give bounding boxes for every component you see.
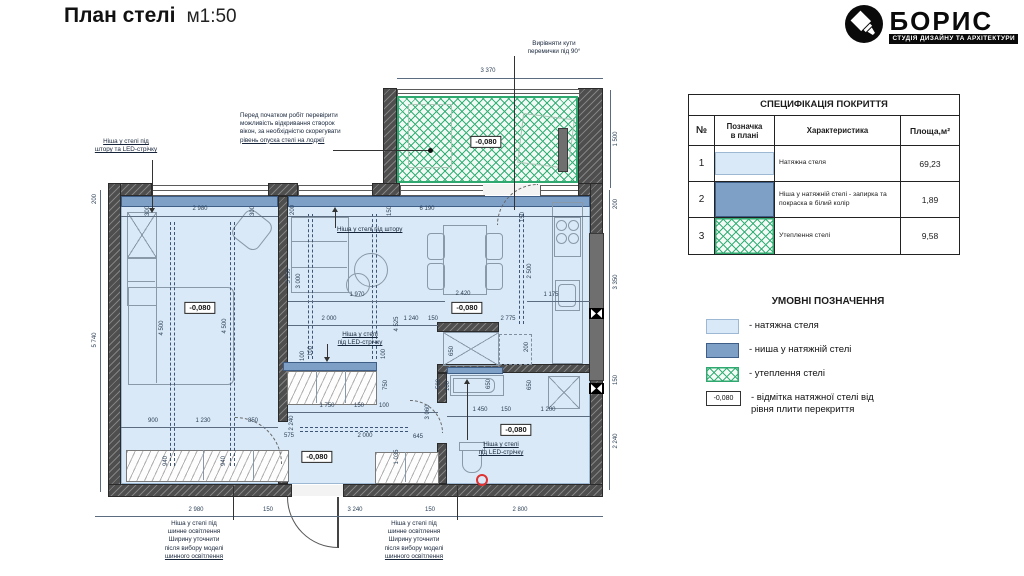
annotation-window-note: Перед початком робіт перевіритиможливіст… [240,112,380,145]
annotation-niche-curtain: Ніша у стелі під штору [337,226,427,234]
top-wall-c [372,183,400,196]
red-marker [476,474,488,486]
elevation-badge: -0,080 [500,424,531,436]
led-line [170,222,175,466]
dim-label: 100 [300,351,306,361]
dim-label: 3 350 [613,274,619,289]
dim-label: 2 800 [512,507,527,513]
annotation-niche-curtain-led: Ніша у стелі підштору та LED-стрічку [84,138,168,154]
elevation-badge: -0,080 [301,451,332,463]
leader-line [514,56,515,210]
dim-label: 200 [92,194,98,204]
balcony-wall-right [578,88,603,188]
dim-label: 4 500 [159,320,165,335]
led-line [300,427,408,432]
dim-label: 150 [501,407,511,413]
washing-machine [548,376,580,409]
dim-label: 100 [379,403,389,409]
balcony-wall-left [383,88,397,188]
leader-line [457,486,458,520]
shelf-line [127,281,155,282]
dim-line [288,325,438,326]
balcony-glazing-bottom-left [400,185,485,196]
left-wall [108,183,121,497]
dim-label: 2 980 [188,507,203,513]
bottom-wall-a [108,484,292,497]
leader-line [333,150,430,151]
dim-label: 2 000 [321,316,336,322]
dim-label: 100 [308,346,314,356]
dim-label: 750 [383,380,389,390]
dim-label: 850 [248,418,258,424]
dim-label: 2 240 [289,415,295,430]
dim-label: 150 [428,316,438,322]
dim-label: 900 [148,418,158,424]
dim-label: 1 230 [195,418,210,424]
dim-label: 575 [284,433,294,439]
dim-label: 150 [387,206,393,216]
dim-label: 200 [524,342,530,352]
led-line [519,214,524,324]
dining-chair [485,263,503,290]
dim-label: 3 250 [286,268,292,283]
plan: 3 3701 5002005 7402003 3501502 2402 9801… [0,0,1024,576]
bed-pillow-line [156,287,157,383]
dim-label: 3 000 [296,273,302,288]
bed [128,287,234,385]
dim-line [397,78,603,79]
niche-bathroom [447,367,503,374]
elevation-badge: -0,080 [184,302,215,314]
sofa-line [291,241,347,242]
entrance-door-gap [292,485,343,496]
dim-line [100,190,101,492]
stove-burner [568,233,579,244]
leader-line [233,486,234,520]
stove-burner [556,233,567,244]
dim-line [288,216,590,217]
balcony-glazing-bottom-right [540,185,580,196]
leader-line [467,382,468,440]
annotation-niche-led-mid: Ніша у стеліпід LED-стрічку [330,331,390,347]
dim-label: 4 525 [394,316,400,331]
top-wall-b [268,183,298,196]
dim-label: 6 190 [419,206,434,212]
dim-label: 1 240 [403,316,418,322]
leader-dot [428,148,433,153]
dim-line [527,301,590,302]
kitchen-lower-wall [437,322,499,332]
dim-label: 2 980 [192,206,207,212]
dim-label: 5 740 [92,332,98,347]
closet-divider [405,452,406,482]
wardrobe-divider [203,450,204,480]
dim-line [447,416,590,417]
dim-label: 100 [445,381,451,391]
dim-label: 100 [381,349,387,359]
dim-label: 650 [486,379,492,389]
dim-label: 4 500 [222,318,228,333]
dim-line [95,516,603,517]
dim-label: 150 [613,375,619,385]
dim-label: 2 000 [357,433,372,439]
dim-line [121,216,278,217]
niche-living-top [288,196,590,207]
dim-label: 1 970 [349,292,364,298]
dim-label: 1 500 [613,131,619,146]
dim-label: 2 420 [455,291,470,297]
corridor-wardrobe [287,371,377,405]
wardrobe-divider [345,371,346,403]
annotation-track-light-right: Ніша у стелі підшинне освітленняШирину у… [370,520,458,561]
annotation-track-light-left: Ніша у стелі підшинне освітленняШирину у… [150,520,238,561]
dim-label: 150 [520,212,526,222]
dim-label: 650 [527,380,533,390]
dim-label: 1 200 [540,407,555,413]
sofa-line [291,267,347,268]
dim-line [288,301,445,302]
leader-arrow [324,357,330,362]
dim-label: 500 [436,379,442,389]
dim-label: 150 [263,507,273,513]
dining-table [443,225,487,295]
insulation-bowtie-icon [589,306,604,324]
dim-label: 2 240 [613,433,619,448]
dim-label: 2 500 [527,263,533,278]
led-line [308,214,313,359]
stove-burner [556,220,567,231]
wardrobe-divider [316,371,317,403]
dining-chair [427,233,445,260]
dim-label: 150 [354,403,364,409]
living-window [298,185,374,196]
dim-label: 200 [290,205,296,215]
dim-label: 3 240 [347,507,362,513]
dim-line [610,90,611,188]
dim-line [288,412,438,413]
kitchen-sink-basin [558,284,576,307]
leader-line [335,211,336,228]
dim-line [609,190,610,490]
dim-label: 940 [221,456,227,466]
dim-label: 1 750 [319,403,334,409]
entrance-door-arc [287,497,338,548]
dim-label: 1 175 [543,292,558,298]
leader-arrow [332,207,338,212]
dim-label: 3 370 [480,68,495,74]
stove-burner [568,220,579,231]
dining-chair [427,263,445,290]
elevation-badge: -0,080 [451,302,482,314]
dim-label: 300 [250,206,256,216]
bedroom-window [152,185,270,196]
elevation-badge: -0,080 [470,136,501,148]
dim-label: 940 [163,456,169,466]
leader-arrow [464,379,470,384]
annotation-niche-led-bath: Ніша у стеліпід LED-стрічку [470,441,532,457]
niche-corridor [283,362,377,371]
corridor-closet [375,452,439,484]
balcony-furniture-ghost [408,104,452,168]
annotation-corner-note: Вирівняти кутиперемички під 90° [514,40,594,56]
dim-label: 1 035 [394,449,400,464]
dim-label: 2 775 [500,316,515,322]
dim-label: 1 450 [472,407,487,413]
dim-label: 200 [613,199,619,209]
leader-line [152,160,153,210]
dim-label: 650 [449,346,455,356]
balcony-cabinet [558,128,568,172]
dim-line [121,427,278,428]
dim-label: 645 [413,434,423,440]
dim-label: 300 [145,206,151,216]
dim-label: 3 060 [425,404,431,419]
insulation-bowtie-icon [589,381,604,399]
bottom-wall-b [343,484,603,497]
bedroom-closet-x [127,212,157,258]
dining-chair [485,233,503,260]
dim-label: 150 [425,507,435,513]
